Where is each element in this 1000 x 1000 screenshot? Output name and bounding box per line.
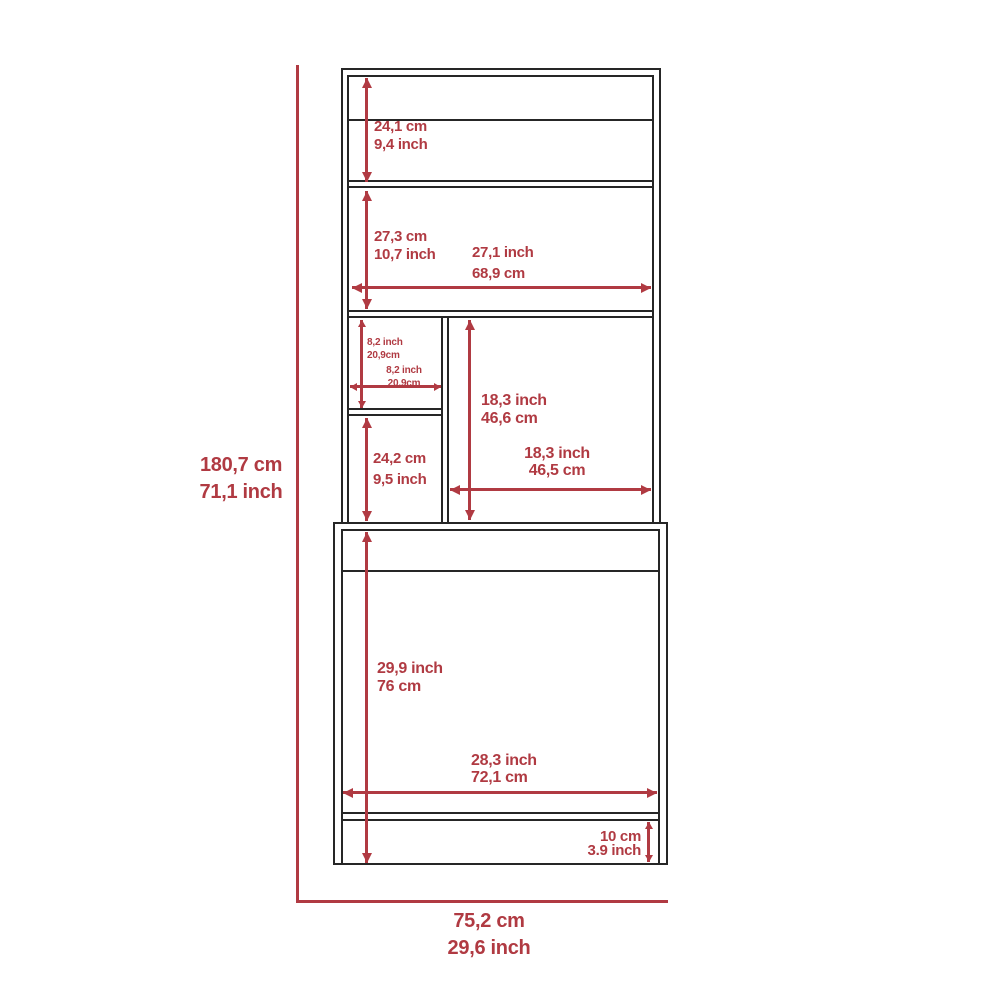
- hutch-top-inner-line: [347, 75, 654, 77]
- lower-cubby-height-label: 24,2 cm 9,5 inch: [373, 448, 426, 490]
- top-shelf-height-label: 24,1 cm 9,4 inch: [374, 118, 427, 154]
- base-kick-line-2: [343, 819, 658, 821]
- toe-kick-height-label: 10 cm 3.9 inch: [576, 830, 641, 858]
- base-left-outer-line: [333, 522, 335, 865]
- hutch-shelf-line-c2: [349, 316, 652, 318]
- mid-shelf-height-arrow: [365, 191, 368, 309]
- right-comp-width-label: 18,3 inch 46,5 cm: [524, 445, 590, 479]
- base-bottom-line: [333, 863, 668, 865]
- hutch-divider-left-line: [441, 318, 443, 524]
- cubby-height-label: 8,2 inch 20,9cm: [367, 336, 403, 362]
- base-inner-width-arrow: [343, 791, 657, 794]
- hutch-left-inner-line: [347, 75, 349, 524]
- hutch-shelf-line-c1: [349, 310, 652, 312]
- right-comp-height-label: 18,3 inch 46,6 cm: [481, 392, 547, 428]
- base-kick-line-1: [343, 812, 658, 814]
- cubby-shelf-line-2: [349, 414, 441, 416]
- hutch-right-inner-line: [652, 75, 654, 524]
- overall-width-label: 75,2 cm 29,6 inch: [439, 908, 539, 962]
- base-inner-height-arrow: [365, 532, 368, 863]
- base-top-outer-line: [333, 522, 668, 524]
- base-top-inner-line: [341, 529, 659, 531]
- overall-height-label: 180,7 cm 71,1 inch: [191, 452, 291, 506]
- lower-cubby-height-arrow: [365, 418, 368, 521]
- overall-height-dimension-line: [296, 65, 299, 903]
- furniture-dimension-diagram: 24,1 cm 9,4 inch 27,3 cm 10,7 inch 27,1 …: [0, 0, 1000, 1000]
- toe-kick-height-arrow: [647, 822, 650, 862]
- base-drawer-line: [343, 570, 658, 572]
- hutch-inner-width-label: 27,1 inch 68,9 cm: [472, 242, 534, 284]
- mid-shelf-height-label: 27,3 cm 10,7 inch: [374, 228, 436, 264]
- overall-width-dimension-line: [296, 900, 668, 903]
- hutch-left-outer-line: [341, 68, 343, 524]
- cubby-shelf-line-1: [349, 408, 441, 410]
- hutch-inner-width-arrow: [352, 286, 651, 289]
- base-right-inner-line: [658, 529, 660, 865]
- hutch-shelf-line-b1: [349, 180, 652, 182]
- top-shelf-height-arrow: [365, 78, 368, 182]
- cubby-height-arrow: [360, 320, 363, 408]
- hutch-divider-right-line: [447, 318, 449, 524]
- base-inner-height-label: 29,9 inch 76 cm: [377, 660, 443, 696]
- right-comp-width-arrow: [450, 488, 651, 491]
- cubby-width-label: 8,2 inch 20,9cm: [383, 364, 425, 390]
- base-right-outer-line: [666, 522, 668, 865]
- hutch-right-outer-line: [659, 68, 661, 524]
- hutch-top-outer-line: [341, 68, 661, 70]
- hutch-shelf-line-b2: [349, 186, 652, 188]
- base-left-inner-line: [341, 529, 343, 865]
- base-inner-width-label: 28,3 inch 72,1 cm: [471, 752, 537, 786]
